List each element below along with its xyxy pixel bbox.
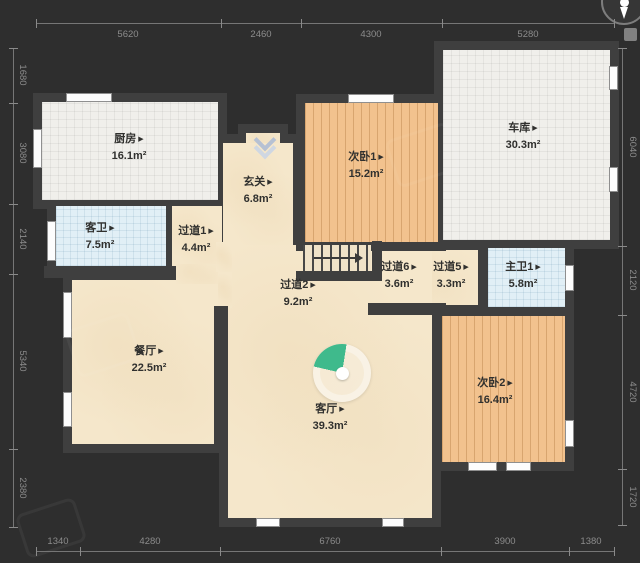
detail-arrow-icon: ▶ — [158, 348, 163, 355]
room-area: 5.8m² — [505, 278, 541, 290]
window-bedroom-2-right — [565, 420, 574, 447]
tick — [9, 48, 18, 49]
dim-bottom-3: 6760 — [319, 536, 340, 547]
room-area: 3.6m² — [381, 278, 417, 290]
tick — [221, 19, 222, 28]
room-area: 16.4m² — [477, 394, 513, 406]
tick — [441, 547, 442, 556]
dim-bottom-2: 4280 — [139, 536, 160, 547]
room-label-kitchen[interactable]: 厨房▶ 16.1m² — [112, 133, 147, 162]
wall-hallway-strip-bottom — [368, 303, 446, 315]
dim-right-1: 6040 — [627, 136, 638, 157]
detail-arrow-icon: ▶ — [411, 264, 416, 271]
detail-arrow-icon: ▶ — [532, 125, 537, 132]
tick — [9, 449, 18, 450]
window-bedroom-1-top — [348, 94, 394, 103]
room-area: 6.8m² — [243, 193, 272, 205]
room-label-dining[interactable]: 餐厅▶ 22.5m² — [132, 345, 167, 374]
opening-dining-living — [218, 272, 232, 308]
wall-dining-living — [214, 306, 228, 452]
window-bedroom-2-bottom-2 — [506, 462, 531, 471]
dim-left-3: 2140 — [17, 228, 28, 249]
wall-guest-bath-dining — [44, 266, 176, 278]
room-label-living[interactable]: 客厅▶ 39.3m² — [313, 403, 348, 432]
tick — [618, 315, 627, 316]
room-label-hallway-2[interactable]: 过道2▶ 9.2m² — [280, 279, 316, 308]
tick — [9, 274, 18, 275]
panorama-center-dot-icon — [336, 367, 349, 380]
tick — [9, 204, 18, 205]
room-label-hallway-6[interactable]: 过道6▶ 3.6m² — [381, 261, 417, 290]
window-garage-right-1 — [609, 66, 618, 90]
detail-arrow-icon: ▶ — [378, 154, 383, 161]
room-area: 7.5m² — [85, 239, 114, 251]
compass-label-tag — [624, 28, 637, 41]
dim-bottom-1: 1340 — [47, 536, 68, 547]
dim-top-1: 5620 — [117, 29, 138, 40]
detail-arrow-icon: ▶ — [535, 264, 540, 271]
tick — [80, 547, 81, 556]
stairs-direction-arrow — [314, 257, 356, 259]
detail-arrow-icon: ▶ — [339, 406, 344, 413]
stairs-arrow-head-icon — [355, 253, 363, 263]
room-label-master-bath[interactable]: 主卫1▶ 5.8m² — [505, 261, 541, 290]
dim-bottom-4: 3900 — [494, 536, 515, 547]
room-area: 3.3m² — [433, 278, 469, 290]
detail-arrow-icon: ▶ — [138, 136, 143, 143]
room-area: 39.3m² — [313, 420, 348, 432]
tick — [614, 547, 615, 556]
room-area: 16.1m² — [112, 150, 147, 162]
window-dining-left-2 — [63, 392, 72, 427]
detail-arrow-icon: ▶ — [109, 225, 114, 232]
tick — [614, 19, 615, 28]
tick — [36, 19, 37, 28]
detail-arrow-icon: ▶ — [310, 282, 315, 289]
room-label-guest-bath[interactable]: 客卫▶ 7.5m² — [85, 222, 114, 251]
tick — [618, 525, 627, 526]
room-label-hallway-1[interactable]: 过道1▶ 4.4m² — [178, 225, 214, 254]
room-area: 22.5m² — [132, 362, 167, 374]
window-living-bottom-1 — [256, 518, 280, 527]
dim-top-2: 2460 — [250, 29, 271, 40]
dim-bottom-5: 1380 — [580, 536, 601, 547]
window-bedroom-2-bottom-1 — [468, 462, 497, 471]
room-area: 9.2m² — [280, 296, 316, 308]
detail-arrow-icon: ▶ — [267, 179, 272, 186]
compass-needle-tip-icon — [620, 7, 628, 19]
dimension-line-bottom — [36, 551, 614, 552]
tick — [618, 48, 627, 49]
dim-top-4: 5280 — [517, 29, 538, 40]
dim-top-3: 4300 — [360, 29, 381, 40]
floor-plan-canvas: 厨房▶ 16.1m² 客卫▶ 7.5m² 过道1▶ 4.4m² 玄关▶ 6.8m… — [0, 0, 640, 563]
tick — [9, 103, 18, 104]
room-label-foyer[interactable]: 玄关▶ 6.8m² — [243, 176, 272, 205]
window-kitchen-top — [66, 93, 112, 102]
room-area: 15.2m² — [348, 168, 384, 180]
room-label-bedroom-2[interactable]: 次卧2▶ 16.4m² — [477, 377, 513, 406]
room-label-hallway-5[interactable]: 过道5▶ 3.3m² — [433, 261, 469, 290]
room-area: 4.4m² — [178, 242, 214, 254]
dim-left-2: 3080 — [17, 142, 28, 163]
detail-arrow-icon: ▶ — [507, 380, 512, 387]
detail-arrow-icon: ▶ — [208, 228, 213, 235]
tick — [618, 469, 627, 470]
dim-right-4: 1720 — [627, 486, 638, 507]
dim-right-2: 2120 — [627, 269, 638, 290]
window-guest-bath-left — [47, 221, 56, 261]
room-label-garage[interactable]: 车库▶ 30.3m² — [506, 122, 541, 151]
tick — [618, 246, 627, 247]
detail-arrow-icon: ▶ — [463, 264, 468, 271]
dimension-line-right — [622, 48, 623, 525]
tick — [442, 19, 443, 28]
window-kitchen-left — [33, 129, 42, 168]
tick — [36, 547, 37, 556]
room-label-bedroom-1[interactable]: 次卧1▶ 15.2m² — [348, 151, 384, 180]
room-area: 30.3m² — [506, 139, 541, 151]
window-living-bottom-2 — [382, 518, 404, 527]
dim-right-3: 4720 — [627, 381, 638, 402]
tick — [569, 547, 570, 556]
tick — [301, 19, 302, 28]
dimension-line-left — [13, 48, 14, 527]
dim-left-1: 1680 — [17, 64, 28, 85]
dim-left-5: 2380 — [17, 477, 28, 498]
dim-left-4: 5340 — [17, 350, 28, 371]
dimension-line-top — [36, 23, 614, 24]
window-garage-right-2 — [609, 167, 618, 192]
window-master-bath-right — [565, 265, 574, 291]
opening-hallway1-foyer — [216, 242, 232, 272]
tick — [9, 527, 18, 528]
tick — [220, 547, 221, 556]
